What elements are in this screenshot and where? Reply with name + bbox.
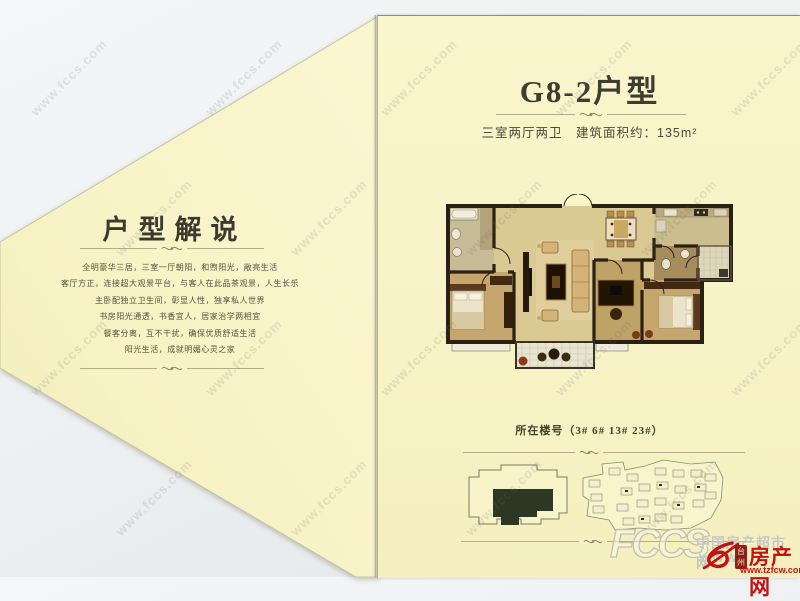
page-fold	[374, 15, 377, 577]
left-panel-description: 全明豪华三居，三室一厅朝阳，和煦阳光，敞亮生活 客厅方正，连接超大观景平台，与客…	[10, 260, 350, 358]
description-line: 主卧配独立卫生间，彰显人性，独享私人世界	[10, 293, 350, 309]
floor-plan	[444, 194, 738, 374]
flourish-icon	[160, 244, 184, 253]
building-number-label: 所在楼号（3# 6# 13# 23#）	[378, 422, 800, 438]
description-line: 阳光生活，成就明媚心灵之家	[10, 342, 350, 358]
unit-title: G8-2户型	[378, 66, 800, 111]
description-line: 书房阳光通透，书香宜人，居家治学两相宜	[10, 309, 350, 325]
description-line: 客厅方正，连接超大观景平台，与客人在此品茶观景，人生长乐	[10, 276, 350, 292]
ornament-divider	[496, 110, 686, 119]
unit-subtitle: 三室两厅两卫 建筑面积约：135m²	[378, 122, 800, 141]
right-page-paper: G8-2户型 三室两厅两卫 建筑面积约：135m²	[377, 15, 800, 578]
brochure-photo: { "brochure": { "left_panel": { "title":…	[0, 0, 800, 577]
footer-logos: FCCS 中国房产超市网 WWW 台州 房产网 www.tzfcw.com.cn	[606, 520, 800, 577]
left-panel-title: 户型解说	[70, 208, 270, 247]
flourish-icon	[578, 110, 604, 119]
description-line: 餐客分离，互不干扰，确保优质舒适生活	[10, 326, 350, 342]
ornament-divider	[80, 244, 264, 253]
flourish-icon	[160, 364, 184, 373]
fccs-logo: FCCS	[610, 522, 707, 567]
portal-url: www.tzfcw.com.cn	[740, 565, 800, 575]
description-line: 全明豪华三居，三室一厅朝阳，和煦阳光，敞亮生活	[10, 260, 350, 276]
ornament-divider	[80, 364, 264, 373]
building-footprint-diagram	[463, 461, 575, 537]
flourish-icon	[582, 537, 604, 546]
